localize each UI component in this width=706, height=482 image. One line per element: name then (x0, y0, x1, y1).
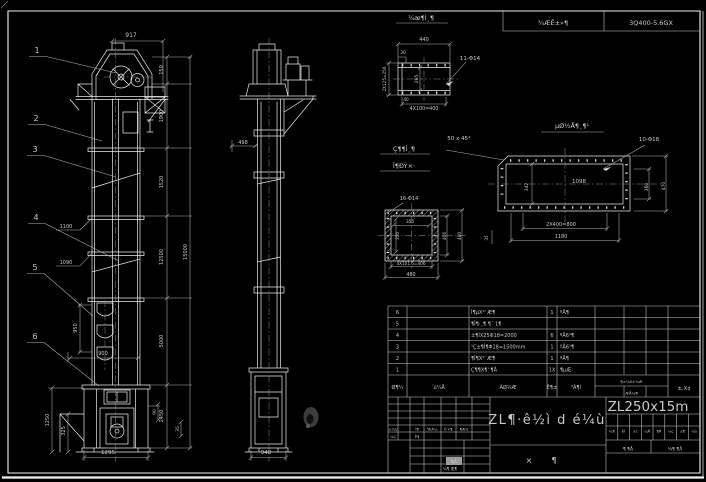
dim-label: 440 (419, 37, 429, 43)
dim-label: 90 (152, 409, 158, 415)
dim-label: 2450 (159, 410, 165, 423)
dim-label: 265 (414, 75, 420, 84)
dim-label: 1295 (101, 450, 115, 456)
dim-label: 480 (406, 272, 415, 278)
bom-header: ´ü¼Å (431, 384, 446, 391)
bom-header: ¶±¼X±¼Æ (620, 379, 643, 384)
dim-label: 325 (61, 426, 67, 436)
dim-label: Ç¶¶Ì¸¶ (393, 144, 415, 153)
titleblock-tiny-cell: ±¶ (680, 430, 685, 434)
bom-cell: ¶Î¶X¹' Æ¶ (471, 355, 495, 362)
dim-label: 1520 (159, 176, 165, 189)
balloon-number: 6 (32, 332, 37, 341)
dim-label: 900 (98, 351, 108, 357)
titleblock-bottom-left: ¼¶ Æ¶ (443, 467, 458, 472)
dim-label: 16-Φ14 (400, 196, 418, 202)
assembly-char-left: × (526, 456, 533, 465)
bom-cell: ±¶ÌX25Φ18=2000 (471, 332, 517, 339)
dim-label: 1250 (45, 414, 51, 427)
dim-label: 1180 (555, 234, 568, 240)
dim-label: ¼æ¶Ì¸¶ (408, 13, 434, 22)
bom-header: ²Ã¶Ì (571, 384, 582, 391)
dim-label: 150 (159, 65, 165, 75)
bom-cell: 1 (396, 368, 399, 374)
dim-label: 498 (238, 140, 248, 146)
dim-label: 350 (395, 232, 400, 240)
dim-label: ¼Ç (390, 435, 396, 439)
bucket-elevator-drawing: ¾ÆÊ±»¶ 3Q400-5.6GX ZL¶·ê½ì d é¼ù ZL250x1… (0, 0, 706, 482)
dim-label: 11-Φ14 (460, 56, 481, 62)
dim-label: 480 (457, 232, 462, 240)
bom-cell: 2 (396, 356, 399, 362)
titleblock-tiny-cell: ¼ù (691, 430, 697, 434)
dim-label: 2X125=250 (382, 66, 387, 91)
bom-cell: ¹Ç±¶Ì¶Φ18=1500mm (471, 344, 526, 351)
dim-label: µØ½Å¶¸¶¹ (555, 121, 590, 130)
dim-label: 4X100=400 (410, 106, 439, 112)
bom-cell: Ç¶¶X¶' ¶Å (471, 367, 498, 374)
bom-cell: Î¶µX¹' Æ¶ (471, 309, 495, 316)
bom-cell: ¶Î¶·¸¶ ¶´ 1¶ (471, 321, 501, 328)
titleblock-tiny-cell: ¼Å (644, 429, 650, 434)
bom-cell: ºÅ¶ (560, 355, 569, 362)
bom-cell: ºÅ6¹¶ (560, 332, 574, 339)
bom-header: Ø¶¼ (392, 384, 404, 391)
dim-label: 406 (442, 232, 447, 240)
bom-cell: 4 (396, 333, 399, 339)
dim-label: 917 (125, 32, 137, 39)
dim-label: 1900 (159, 110, 165, 123)
dim-label: 1090 (60, 260, 73, 266)
balloon-number: 2 (33, 114, 38, 123)
balloon-number: 1 (34, 46, 39, 55)
cad-drawing-page: ¾ÆÊ±»¶ 3Q400-5.6GX ZL¶·ê½ì d é¼ù ZL250x1… (0, 0, 706, 482)
bom-header: ±,X¢ (677, 386, 691, 392)
bom-cell: ºÅ6¹¶ (560, 344, 574, 351)
balloon-number: 3 (32, 145, 37, 154)
titleblock-tiny-cell: ±1 (633, 430, 638, 434)
dim-label: ¹ÆÄ¼ (427, 427, 438, 432)
balloon-number: 5 (32, 263, 37, 272)
balloon-number: 4 (33, 213, 38, 222)
dim-label: 360 (644, 183, 650, 192)
dim-label: 2X400=800 (546, 222, 576, 228)
titleblock-main-title: ZL¶·ê½ì d é¼ù (488, 413, 606, 428)
dim-label: 355 (406, 219, 414, 224)
bom-cell: ºÅ¶ (560, 309, 569, 316)
dim-label: Ï¶ÐÝ×· (393, 161, 415, 170)
dim-label: 1098 (572, 179, 586, 185)
dim-label: ±¼Ç (388, 428, 397, 432)
bom-cell: 6 (396, 310, 399, 316)
dim-label: 12500 (159, 249, 165, 265)
titleblock-tiny-cell: ¼¶ (609, 430, 615, 434)
dim-label: Ê¶ (415, 434, 420, 439)
bom-cell: 3 (396, 345, 399, 351)
dim-label: 15000 (183, 244, 189, 260)
dim-label: 470 (661, 182, 667, 191)
bom-header: ÃØ¾Æ (499, 384, 516, 391)
assembly-char-right: ¶ (551, 456, 556, 465)
header-left-cell: ¾ÆÊ±»¶ (538, 18, 568, 27)
header-right-cell: 3Q400-5.6GX (629, 19, 673, 27)
titleblock-tiny-cell: ¶Å (657, 429, 662, 434)
bom-cell: 6 (550, 333, 553, 339)
dim-label: 10-Φ18 (639, 137, 660, 143)
dim-label: ¶ÆÚ (460, 427, 469, 432)
dim-label: 35 (175, 426, 181, 432)
titleblock-model: ZL250x15m (608, 399, 689, 415)
bom-cell: 5 (396, 322, 399, 328)
titleblock-tiny-cell: ÊÌ (622, 429, 625, 434)
dim-label: 4X101.5=406 (396, 261, 425, 266)
bom-cell: 1X (549, 368, 556, 374)
dim-label: 950 (73, 323, 79, 333)
paper-background (0, 0, 706, 482)
dim-label: 1100 (60, 224, 73, 230)
bom-cell: 1 (550, 310, 553, 316)
dim-label: ©×¶ (444, 428, 453, 432)
dim-label: 35 (484, 235, 489, 241)
sheet-count-right: ¼¶ ¶Å (668, 446, 684, 453)
bom-cell: ¶µÆ· (560, 368, 573, 374)
titleblock-tiny-cell: ¼ç (668, 430, 673, 434)
dim-label: Ì¶ (415, 427, 418, 432)
dim-label: 30 (400, 50, 406, 56)
bom-header: ÆÅ¼¶ (625, 391, 637, 396)
bom-header: Ê¶± (547, 383, 558, 391)
bom-cell: 1 (550, 356, 553, 362)
dim-label: 40 (403, 97, 409, 102)
stamp-cell-text: ¶Å (451, 459, 458, 466)
dim-label: 50 x 45° (447, 136, 471, 142)
dim-label: 342 (524, 183, 530, 192)
dim-label: 5000 (159, 335, 165, 348)
bom-cell: 1 (550, 345, 553, 351)
sheet-count-left: ¶ ¶Å (623, 446, 634, 453)
dim-label: 948 (261, 450, 272, 456)
